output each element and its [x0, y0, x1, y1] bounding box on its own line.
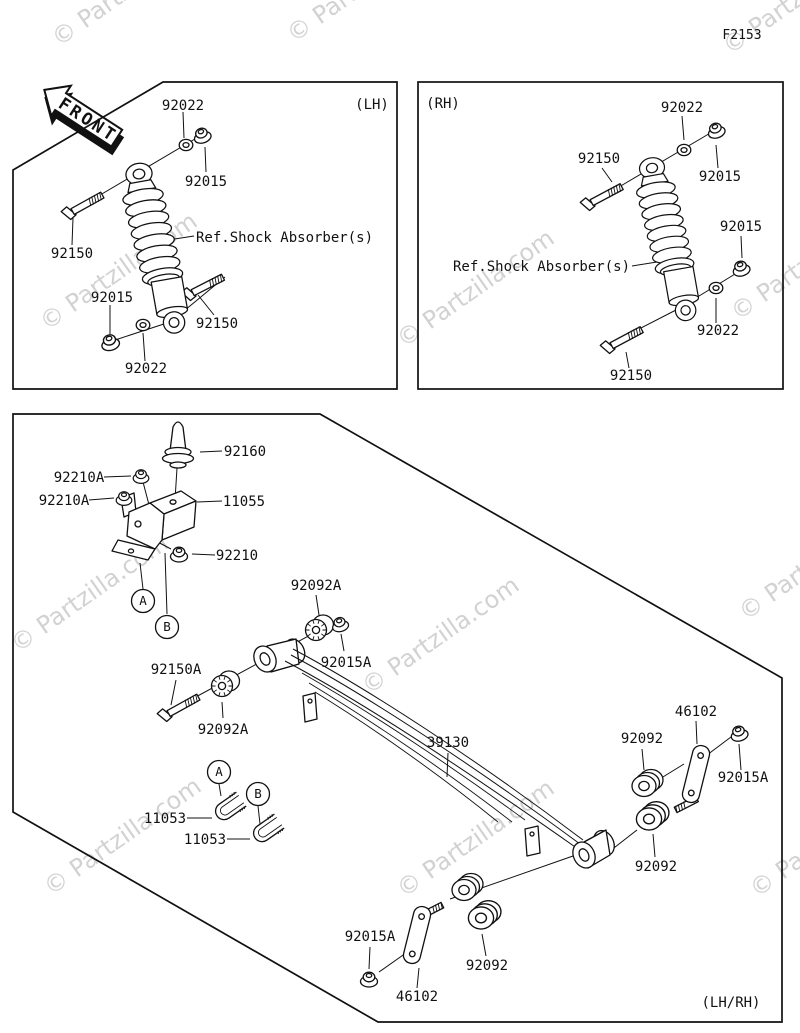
- part-label-92092-right-1: 92092: [621, 731, 663, 747]
- diagram-canvas: © Partzilla.com © Partzilla.com © Partzi…: [0, 0, 800, 1033]
- bump-stop-92160: [163, 422, 194, 468]
- lh-upper-flange-nut: [192, 126, 213, 145]
- part-label-92210: 92210: [216, 548, 258, 564]
- watermark: © Partzilla.com: [357, 571, 525, 700]
- watermark-layer: © Partzilla.com © Partzilla.com © Partzi…: [6, 0, 800, 903]
- front-direction-arrow: FRONT: [31, 75, 131, 160]
- part-label-92092-right-2: 92092: [635, 859, 677, 875]
- lh-lower-washer: [136, 319, 150, 330]
- part-label-92015-lh-top: 92015: [185, 174, 227, 190]
- rh-lower-washer: [709, 282, 723, 293]
- rear-suspension-assembly: (LH/RH): [39, 422, 769, 1011]
- part-label-92210A-1: 92210A: [54, 470, 105, 486]
- part-label-92150-rh-bottom: 92150: [610, 368, 652, 384]
- ref-shock-note-lh: Ref.Shock Absorber(s): [196, 230, 373, 246]
- nut-92015A-bottom: [361, 972, 378, 987]
- leaf-spring-front-eye: [250, 636, 309, 676]
- part-label-92210A-2: 92210A: [39, 493, 90, 509]
- u-bolt-11053-a: [211, 791, 247, 824]
- splined-bushing-92092A-top: [306, 615, 334, 641]
- part-label-11053-b: 11053: [184, 832, 226, 848]
- callout-a2: A: [215, 764, 223, 779]
- part-label-46102-bottom: 46102: [396, 989, 438, 1005]
- watermark: © Partzilla.com: [39, 772, 207, 901]
- u-bolt-11053-b: [249, 813, 285, 846]
- bracket-nut-92210A-2: [116, 492, 132, 506]
- part-label-92150A: 92150A: [151, 662, 202, 678]
- watermark: © Partzilla.com: [726, 197, 800, 326]
- bushing-92092-bottom-1: [452, 874, 483, 901]
- bracket-nut-92210A-1: [133, 470, 149, 484]
- rh-upper-bolt: [580, 180, 625, 212]
- part-label-92092A-left: 92092A: [198, 722, 249, 738]
- shackle-plate-46102-top: [681, 744, 712, 804]
- bushing-92092-right-2: [636, 802, 669, 830]
- rh-shock-absorber: [631, 154, 704, 326]
- lhrh-tag: (LH/RH): [701, 995, 760, 1011]
- rh-lower-bolt: [600, 323, 645, 355]
- part-label-92160: 92160: [224, 444, 266, 460]
- part-label-92092A-top: 92092A: [291, 578, 342, 594]
- part-label-92015-rh-top: 92015: [699, 169, 741, 185]
- bushing-92092-bottom-2: [468, 901, 501, 929]
- shackle-plate-46102-bottom: [402, 905, 433, 965]
- lh-lower-flange-nut: [100, 333, 121, 353]
- part-label-92015A-bottom: 92015A: [345, 929, 396, 945]
- figure-code: F2153: [722, 28, 761, 43]
- part-label-92150-lh-bottom: 92150: [196, 316, 238, 332]
- nut-92015A-top: [331, 616, 350, 634]
- callout-b2: B: [254, 786, 262, 801]
- part-label-92150-rh-top: 92150: [578, 151, 620, 167]
- bushing-92092-right-1: [632, 770, 663, 797]
- leaf-spring-rear-eye: [569, 827, 619, 872]
- part-label-92092-bottom: 92092: [466, 958, 508, 974]
- leaf-spring-39130: [285, 649, 583, 856]
- part-label-11053-a: 11053: [144, 811, 186, 827]
- part-label-39130: 39130: [427, 735, 469, 751]
- lock-nut-92210: [171, 547, 188, 562]
- lh-lower-bolt: [181, 271, 226, 303]
- part-label-11055: 11055: [223, 494, 265, 510]
- splined-bushing-92092A-left: [212, 671, 240, 697]
- rh-shock-assembly: (RH) 92022 92150 92015 92015 Ref.Shock A…: [426, 96, 762, 384]
- watermark: © Partzilla.com: [392, 224, 560, 353]
- callout-a: A: [139, 593, 147, 608]
- watermark: © Partzilla.com: [47, 0, 215, 52]
- watermark: © Partzilla.com: [745, 774, 800, 903]
- parts-diagram-page: © Partzilla.com © Partzilla.com © Partzi…: [0, 0, 800, 1033]
- callout-b: B: [163, 619, 171, 634]
- part-label-92015A-top: 92015A: [321, 655, 372, 671]
- part-label-92015A-right: 92015A: [718, 770, 769, 786]
- part-label-92022-rh-top: 92022: [661, 100, 703, 116]
- lh-upper-washer: [179, 139, 193, 150]
- part-label-46102-top: 46102: [675, 704, 717, 720]
- lh-tag: (LH): [355, 97, 389, 113]
- ref-shock-note-rh: Ref.Shock Absorber(s): [453, 259, 630, 275]
- part-label-92022-lh-top: 92022: [162, 98, 204, 114]
- watermark: © Partzilla.com: [282, 0, 450, 48]
- lh-upper-bolt: [60, 189, 105, 222]
- part-label-92015-rh-right: 92015: [720, 219, 762, 235]
- rh-upper-washer: [677, 144, 691, 155]
- nut-92015A-right: [729, 724, 749, 743]
- part-label-92015-lh-bottom: 92015: [91, 290, 133, 306]
- part-label-92150-lh-left: 92150: [51, 246, 93, 262]
- pivot-bolt-92150A: [156, 691, 201, 724]
- rh-upper-flange-nut: [706, 121, 727, 140]
- watermark: © Partzilla.com: [734, 497, 800, 626]
- part-label-92022-rh-bottom: 92022: [697, 323, 739, 339]
- rh-panel-box: [418, 82, 783, 389]
- rh-tag: (RH): [426, 96, 460, 112]
- part-label-92022-lh-bottom: 92022: [125, 361, 167, 377]
